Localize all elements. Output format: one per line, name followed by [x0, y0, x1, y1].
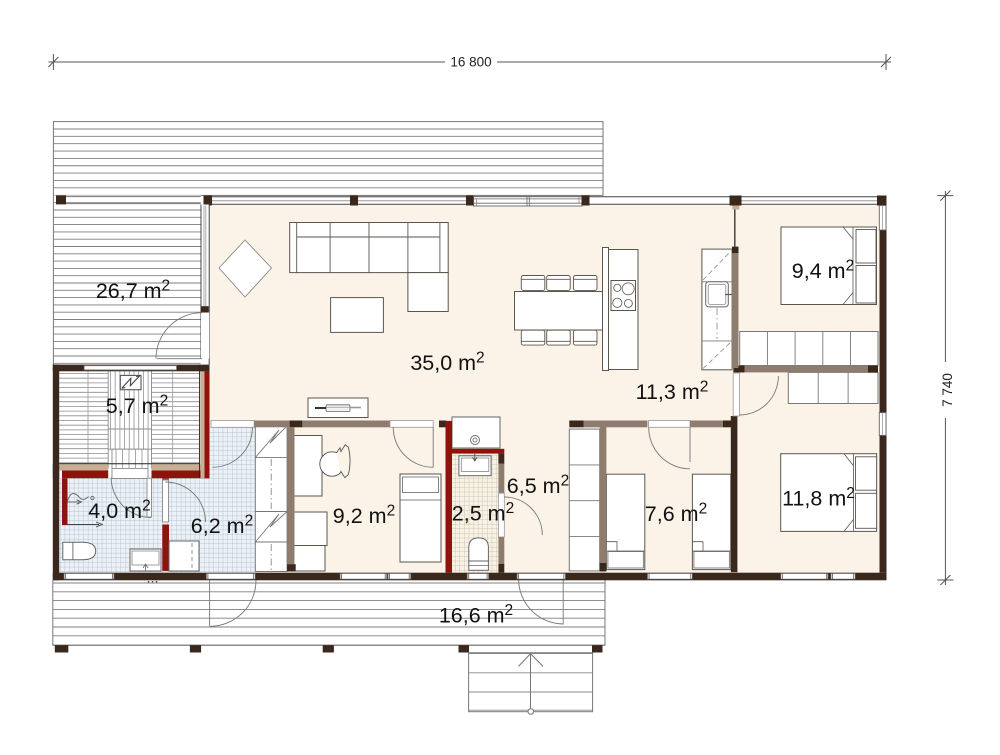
- svg-text:6,2 m2: 6,2 m2: [191, 513, 253, 539]
- svg-text:11,8 m2: 11,8 m2: [782, 485, 855, 511]
- svg-text:16 800: 16 800: [450, 55, 491, 70]
- svg-text:11,3 m2: 11,3 m2: [636, 379, 709, 405]
- svg-text:5,7 m2: 5,7 m2: [106, 393, 168, 419]
- svg-text:16,6 m2: 16,6 m2: [439, 602, 513, 628]
- svg-text:7 740: 7 740: [940, 373, 955, 407]
- svg-text:9,2 m2: 9,2 m2: [333, 503, 395, 529]
- svg-text:26,7 m2: 26,7 m2: [96, 278, 170, 304]
- svg-text:2,5 m2: 2,5 m2: [452, 500, 514, 526]
- svg-text:7,6 m2: 7,6 m2: [645, 501, 707, 527]
- svg-text:9,4 m2: 9,4 m2: [792, 258, 854, 284]
- svg-text:4,0 m2: 4,0 m2: [88, 498, 150, 524]
- svg-text:6,5 m2: 6,5 m2: [507, 473, 569, 499]
- svg-text:35,0 m2: 35,0 m2: [410, 350, 484, 376]
